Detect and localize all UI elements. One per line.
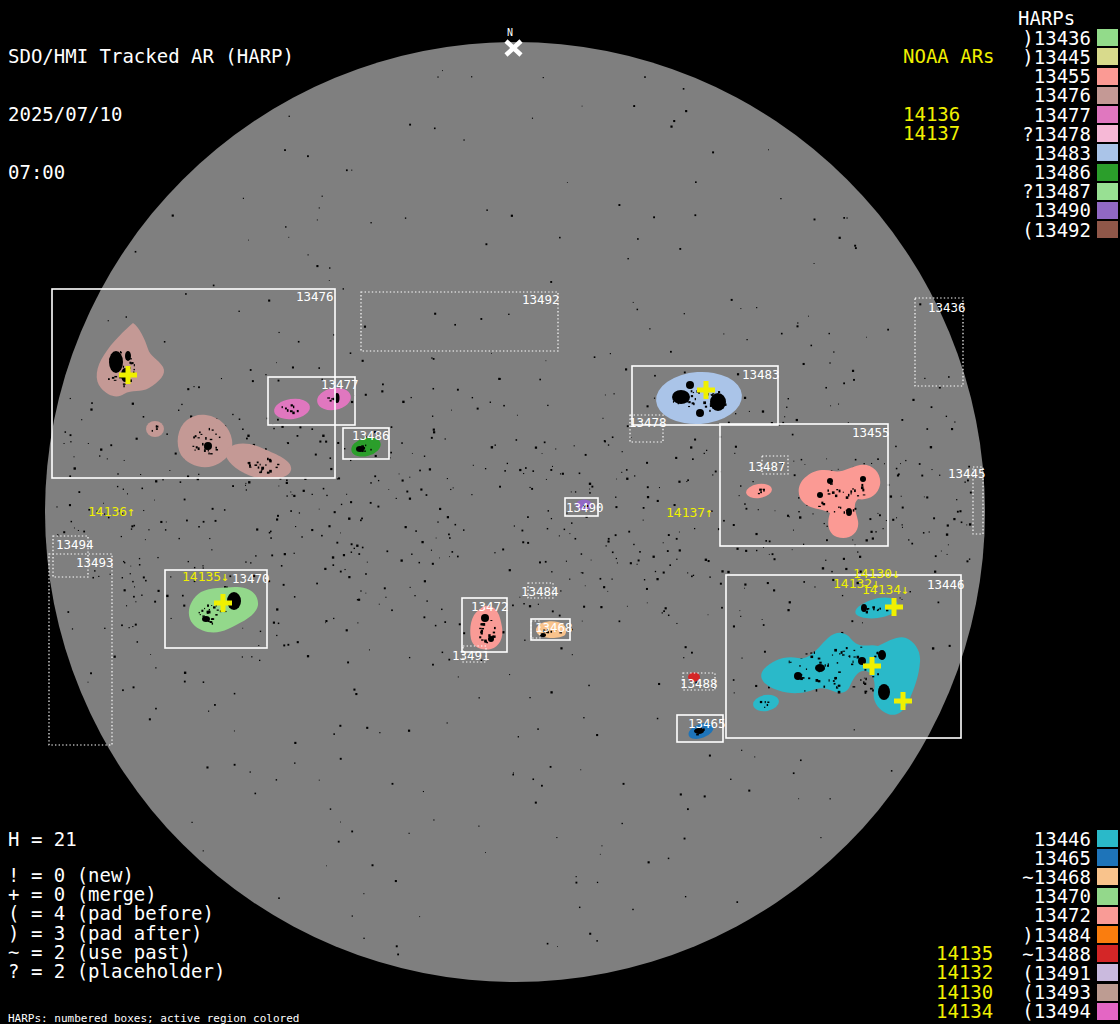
speckle [825, 560, 826, 561]
speckle [774, 558, 776, 560]
sunspot-speckle [686, 400, 688, 402]
sunspot-speckle [156, 428, 158, 430]
speckle [133, 596, 135, 598]
speckle [694, 528, 695, 529]
speckle [434, 128, 436, 130]
sunspot-speckle [113, 369, 114, 370]
speckle [872, 537, 874, 539]
speckle [665, 607, 667, 609]
sunspot-speckle [818, 506, 821, 507]
sunspot-speckle [481, 630, 483, 632]
speckle [301, 536, 302, 537]
speckle [531, 488, 533, 490]
sunspot-speckle [254, 464, 257, 466]
speckle [704, 795, 706, 797]
speckle [582, 106, 583, 107]
sunspot-speckle [111, 362, 113, 365]
speckle [124, 460, 125, 461]
speckle [970, 492, 972, 494]
speckle [319, 509, 320, 510]
speckle [550, 766, 552, 768]
sunspot-speckle [152, 430, 153, 432]
speckle [429, 468, 431, 470]
speckle [591, 486, 593, 488]
speckle [491, 446, 493, 448]
speckle [123, 561, 124, 562]
sunspot-speckle [711, 394, 714, 395]
speckle [621, 823, 622, 824]
sunspot-speckle [688, 406, 690, 407]
speckle [135, 251, 137, 253]
sunspot-speckle [800, 674, 803, 676]
speckle [348, 517, 350, 519]
speckle [160, 521, 162, 523]
sunspot-speckle [127, 358, 129, 360]
speckle [133, 525, 135, 527]
speckle [184, 499, 186, 501]
speckle [948, 376, 950, 378]
speckle [316, 583, 318, 585]
speckle [186, 520, 188, 522]
speckle [626, 478, 628, 480]
speckle [325, 622, 326, 623]
sunspot-speckle [821, 502, 823, 504]
speckle [580, 769, 581, 770]
speckle [245, 561, 246, 562]
speckle [602, 418, 603, 419]
speckle [607, 591, 608, 592]
sunspot-speckle [204, 449, 206, 452]
speckle [538, 604, 539, 605]
speckle [351, 543, 353, 545]
sunspot-speckle [129, 358, 132, 359]
speckle [902, 527, 903, 528]
speckle [931, 469, 932, 470]
speckle [307, 655, 309, 657]
speckle [740, 308, 741, 309]
speckle [321, 535, 323, 537]
sunspot-speckle [479, 636, 481, 638]
speckle [612, 436, 614, 438]
sunspot-speckle [842, 651, 845, 652]
sunspot-speckle [277, 464, 279, 465]
speckle [396, 945, 398, 947]
speckle [346, 169, 348, 171]
sunspot-speckle [832, 491, 835, 494]
speckle [535, 447, 537, 449]
speckle [948, 544, 949, 545]
speckle [162, 479, 163, 480]
speckle [831, 571, 832, 572]
speckle [94, 570, 95, 571]
sunspot-speckle [853, 686, 856, 687]
speckle [509, 569, 511, 571]
speckle [423, 791, 424, 792]
sunspot-speckle [852, 488, 854, 489]
sunspot-speckle [292, 412, 294, 415]
speckle [390, 452, 392, 454]
speckle [132, 403, 134, 405]
speckle [245, 485, 246, 486]
speckle [744, 583, 746, 585]
sunspot-patch [815, 664, 825, 672]
speckle [121, 624, 123, 626]
speckle [330, 808, 331, 809]
speckle [723, 520, 725, 522]
speckle [325, 441, 327, 443]
speckle [908, 539, 909, 540]
speckle [581, 572, 582, 573]
sunspot-speckle [215, 434, 217, 435]
speckle [662, 612, 663, 613]
speckle [292, 494, 293, 495]
speckle [357, 622, 358, 623]
speckle [939, 475, 940, 476]
sunspot-speckle [846, 510, 848, 511]
speckle [678, 481, 680, 483]
sunspot-speckle [834, 677, 836, 679]
speckle [864, 463, 865, 464]
speckle [214, 704, 216, 706]
speckle [143, 576, 145, 578]
speckle [276, 362, 277, 363]
sunspot-speckle [709, 410, 710, 412]
speckle [611, 579, 612, 580]
speckle [746, 339, 747, 340]
speckle [695, 181, 697, 183]
sunspot-speckle [814, 651, 815, 653]
speckle [901, 496, 902, 497]
speckle [730, 779, 731, 780]
speckle [248, 240, 249, 241]
speckle [499, 486, 501, 488]
speckle [715, 471, 717, 473]
sunspot-speckle [490, 620, 492, 621]
speckle [784, 416, 785, 417]
speckle [559, 615, 561, 617]
speckle [419, 562, 421, 564]
speckle [769, 554, 770, 555]
speckle [683, 657, 684, 658]
speckle [283, 644, 285, 646]
speckle [316, 265, 318, 267]
speckle [365, 593, 366, 594]
speckle [616, 558, 617, 559]
speckle [653, 216, 655, 218]
sunspot-speckle [886, 610, 888, 612]
speckle [344, 448, 345, 449]
speckle [184, 672, 186, 674]
speckle [808, 316, 809, 317]
speckle [338, 477, 340, 479]
speckle [637, 309, 639, 311]
speckle [647, 602, 648, 603]
sunspot-speckle [839, 490, 841, 493]
speckle [926, 428, 928, 430]
speckle [694, 214, 696, 216]
harp-list-item: )13445 [920, 47, 1120, 66]
speckle [193, 386, 194, 387]
speckle [647, 405, 649, 407]
speckle [886, 520, 887, 521]
speckle [683, 88, 685, 90]
speckle [108, 320, 109, 321]
speckle [532, 778, 534, 780]
speckle [741, 658, 742, 659]
sunspot-speckle [853, 650, 855, 651]
noaa-shifted-label: 14135↓ [182, 569, 229, 584]
speckle [441, 609, 442, 610]
speckle [500, 378, 501, 379]
speckle [509, 674, 510, 675]
sunspot-speckle [192, 446, 194, 447]
speckle [736, 901, 738, 903]
speckle [853, 379, 855, 381]
speckle [299, 426, 301, 428]
harp-color-swatch [1097, 868, 1118, 885]
speckle [426, 494, 428, 496]
speckle [527, 516, 529, 518]
harp-id-label: (13494 [1022, 1000, 1091, 1022]
sunspot-speckle [257, 462, 259, 464]
speckle [242, 656, 243, 657]
speckle [610, 353, 611, 354]
speckle [121, 536, 122, 537]
speckle [290, 491, 291, 492]
speckle [803, 544, 804, 545]
speckle [311, 428, 313, 430]
speckle [582, 572, 584, 574]
speckle [307, 155, 309, 157]
speckle [921, 475, 923, 477]
sunspot-speckle [133, 369, 134, 370]
speckle [644, 76, 646, 78]
speckle [663, 542, 664, 543]
speckle [131, 525, 133, 527]
speckle [56, 506, 57, 507]
speckle [691, 576, 693, 578]
speckle [969, 523, 971, 525]
speckle [633, 544, 634, 545]
speckle [81, 419, 82, 420]
harp-color-swatch [1097, 1003, 1118, 1020]
speckle [247, 435, 249, 437]
sunspot-patch [878, 684, 890, 700]
speckle [317, 219, 318, 220]
speckle [224, 509, 226, 511]
speckle [685, 896, 686, 897]
speckle [953, 518, 955, 520]
speckle [879, 514, 881, 516]
speckle [164, 341, 166, 343]
harp-color-swatch [1097, 68, 1118, 85]
speckle [278, 380, 280, 382]
speckle [250, 771, 251, 772]
speckle [793, 461, 794, 462]
harp-number-label: 13455 [852, 425, 890, 440]
speckle [814, 586, 815, 587]
speckle [229, 575, 231, 577]
sunspot-speckle [269, 470, 272, 473]
speckle [670, 351, 672, 353]
sunspot-speckle [109, 358, 112, 360]
sunspot-speckle [198, 437, 200, 438]
speckle [129, 627, 130, 628]
speckle [623, 783, 625, 785]
speckle [92, 577, 94, 579]
sunspot-speckle [872, 689, 874, 691]
speckle [966, 560, 968, 562]
sunspot-speckle [120, 363, 122, 365]
speckle [798, 497, 799, 498]
speckle [649, 328, 650, 329]
harp-number-label: 13492 [522, 292, 560, 307]
speckle [594, 356, 596, 358]
speckle [382, 383, 384, 385]
speckle [733, 679, 735, 681]
speckle [830, 405, 831, 406]
sunspot-speckle [876, 652, 878, 653]
speckle [550, 691, 552, 693]
speckle [668, 858, 670, 860]
speckle [365, 573, 367, 575]
speckle [910, 591, 911, 592]
speckle [656, 578, 658, 580]
speckle [657, 718, 658, 719]
speckle [830, 798, 831, 799]
sunspot-speckle [882, 658, 884, 660]
speckle [473, 465, 474, 466]
sunspot-speckle [269, 460, 271, 463]
speckle [203, 681, 205, 683]
speckle [213, 285, 215, 287]
noaa-shifted-label: 14137↑ [666, 505, 713, 520]
speckle [843, 558, 845, 560]
speckle [182, 595, 184, 597]
speckle [512, 774, 514, 776]
speckle [938, 602, 940, 604]
speckle [752, 481, 753, 482]
noaa-shifted-label: 14134↓ [862, 582, 909, 597]
speckle [537, 728, 539, 730]
speckle [932, 647, 934, 649]
speckle [437, 521, 438, 522]
speckle [315, 454, 317, 456]
legend-item: ? = 2 (placeholder) [8, 962, 225, 981]
speckle [448, 659, 450, 661]
speckle [684, 371, 686, 373]
speckle [706, 450, 707, 451]
sunspot-speckle [249, 464, 251, 466]
speckle [857, 551, 858, 552]
speckle [733, 625, 735, 627]
speckle [794, 474, 796, 476]
speckle [545, 360, 546, 361]
speckle [270, 531, 272, 533]
sunspot-speckle [208, 445, 210, 446]
sunspot-speckle [156, 426, 159, 428]
harp-list-item: 13446 [920, 829, 1120, 848]
speckle [786, 407, 787, 408]
harp-list-item: ~13468 [920, 867, 1120, 886]
speckle [589, 489, 590, 490]
speckle [768, 687, 770, 689]
speckle [919, 303, 921, 305]
speckle [284, 553, 286, 555]
sunspot-speckle [211, 605, 212, 606]
sunspot-speckle [846, 496, 849, 499]
speckle [434, 313, 436, 315]
sunspot-speckle [691, 395, 693, 397]
speckle [187, 388, 189, 390]
speckle [412, 453, 413, 454]
speckle [391, 426, 393, 428]
speckle [183, 605, 185, 607]
sunspot-speckle [481, 623, 483, 625]
speckle [181, 404, 182, 405]
sunspot-speckle [195, 435, 197, 437]
speckle [617, 562, 618, 563]
speckle [414, 595, 415, 596]
speckle [370, 482, 371, 483]
speckle [575, 538, 577, 540]
speckle [409, 477, 410, 478]
speckle [709, 576, 710, 577]
harp-color-swatch [1097, 106, 1118, 123]
speckle [912, 399, 914, 401]
speckle [765, 540, 767, 542]
speckle [351, 401, 353, 403]
speckle [797, 322, 798, 323]
speckle [826, 458, 827, 459]
sunspot-speckle [711, 401, 714, 403]
speckle [957, 511, 959, 513]
speckle [935, 555, 937, 557]
speckle [859, 556, 861, 558]
speckle [686, 481, 687, 482]
speckle [90, 672, 92, 674]
speckle [901, 419, 903, 421]
speckle [787, 609, 789, 611]
speckle [896, 468, 898, 470]
speckle [756, 550, 757, 551]
harp-color-swatch [1097, 830, 1118, 847]
sunspot-speckle [829, 679, 830, 681]
sunspot-speckle [816, 689, 817, 691]
speckle [690, 446, 692, 448]
harp-list-item: )13436 [920, 28, 1120, 47]
harp-list-item: 13483 [920, 143, 1120, 162]
speckle [634, 105, 636, 107]
sunspot-speckle [853, 661, 854, 663]
speckle [150, 654, 151, 655]
speckle [877, 458, 879, 460]
speckle [354, 548, 355, 549]
sunspot-speckle [290, 410, 293, 412]
speckle [734, 453, 735, 454]
speckle [574, 445, 575, 446]
speckle [401, 442, 403, 444]
speckle [663, 572, 665, 574]
sdo-hmi-harp-screen: { "title": { "line1": "SDO/HMI Tracked A… [0, 0, 1120, 1024]
noaa-ar-item: 14130 [936, 983, 993, 1002]
speckle [277, 419, 279, 421]
speckle [166, 433, 168, 435]
speckle [550, 469, 552, 471]
speckle [740, 485, 741, 486]
speckle [947, 554, 948, 555]
harp-number-label: 13491 [452, 648, 490, 663]
